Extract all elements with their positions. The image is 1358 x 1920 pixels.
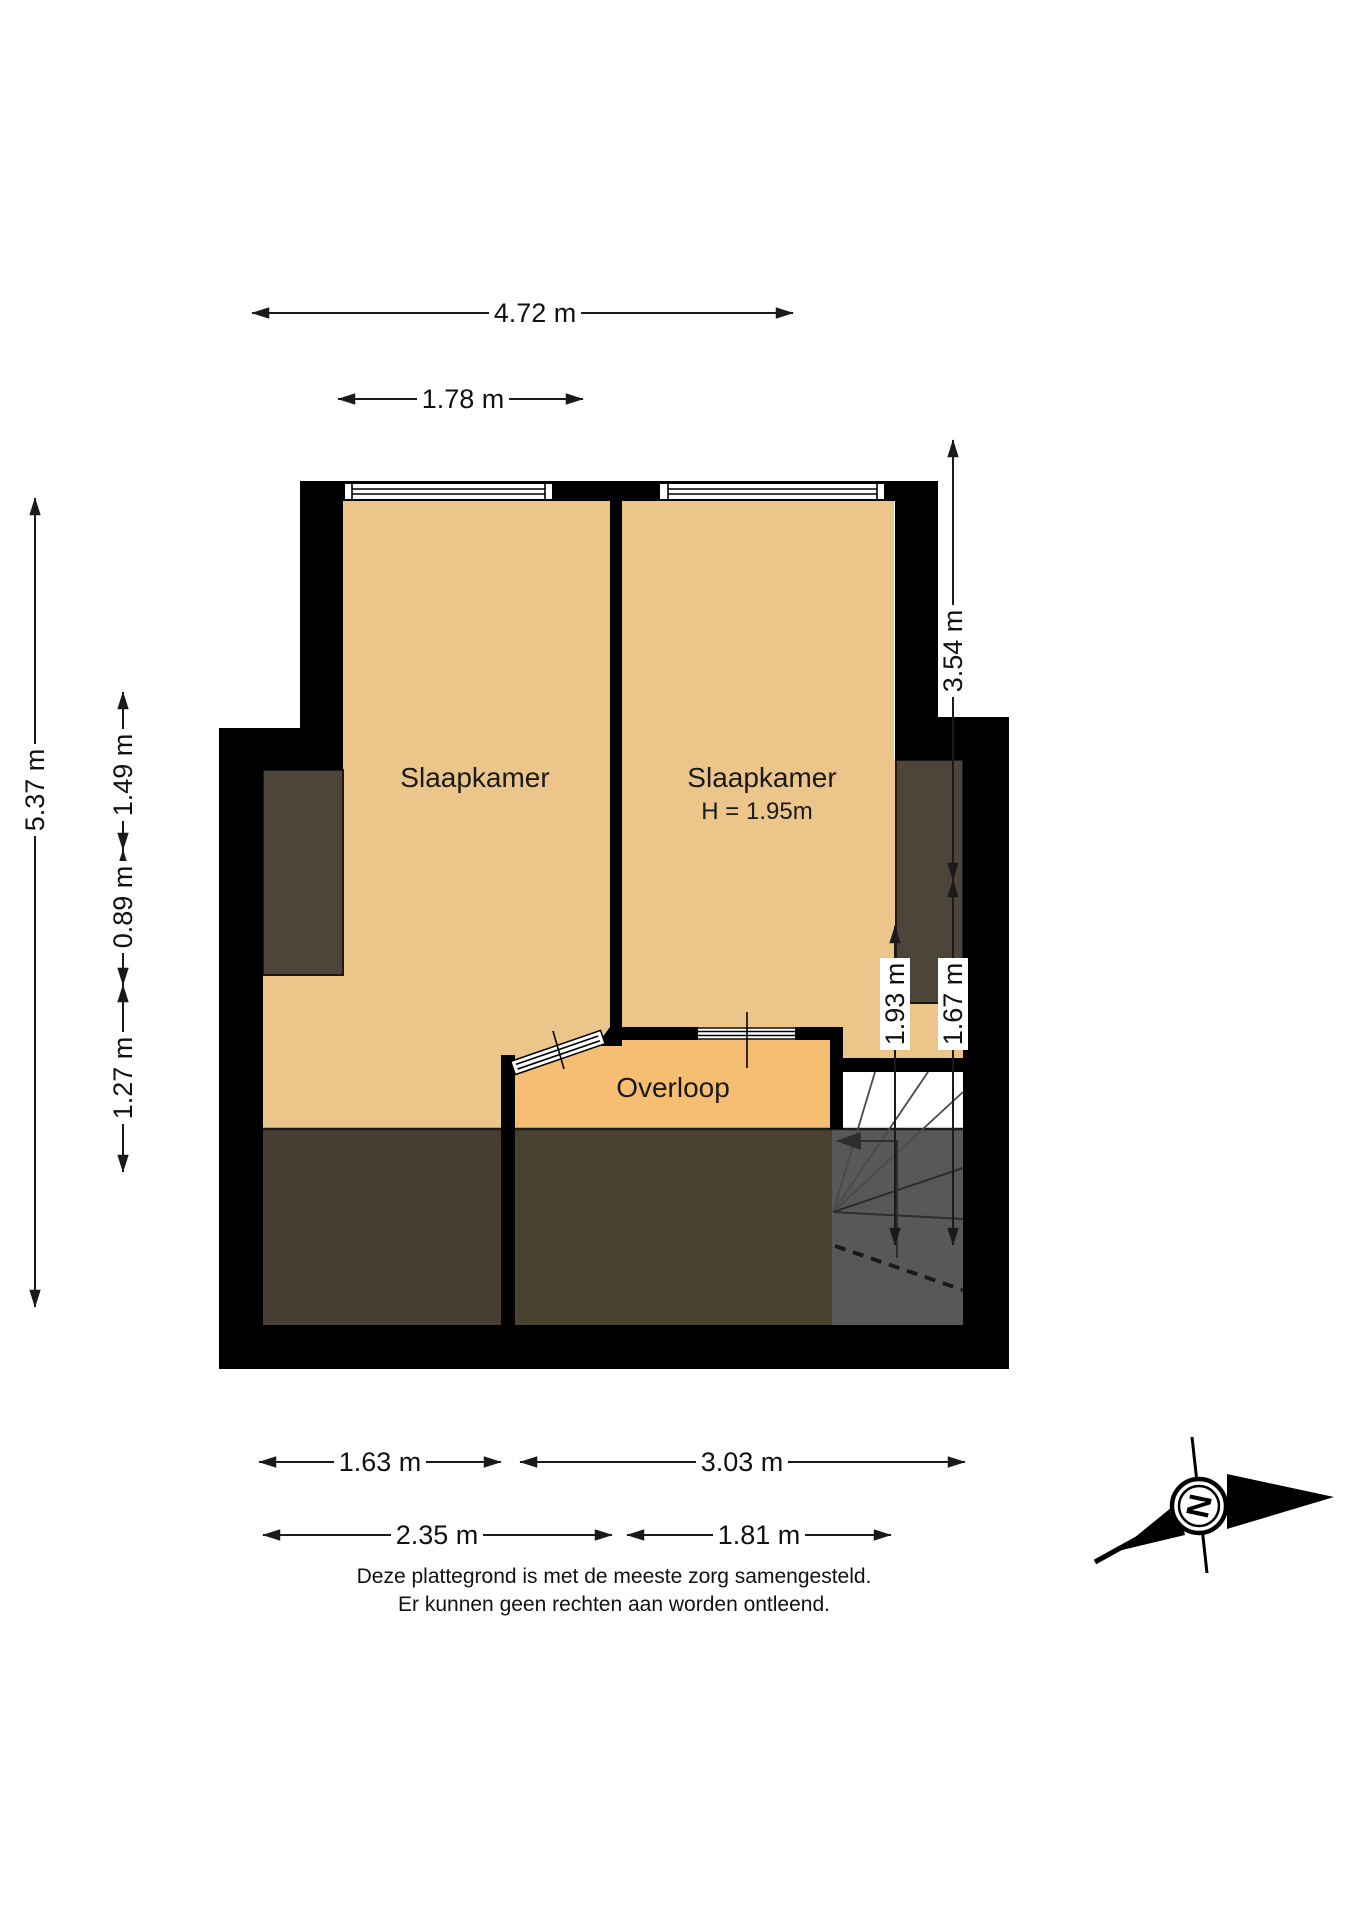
disclaimer-line-1: Deze plattegrond is met de meeste zorg s… bbox=[357, 1565, 872, 1588]
dim-left-overall: 5.37 m bbox=[20, 498, 50, 1307]
dim-label: 3.03 m bbox=[701, 1447, 784, 1477]
landing-label: Overloop bbox=[616, 1072, 730, 1103]
wall-segment bbox=[895, 501, 938, 717]
dim-label: 3.54 m bbox=[938, 610, 968, 693]
dim-left-segment-1: 1.49 m bbox=[108, 692, 138, 850]
window-top-right bbox=[660, 484, 884, 499]
compass-rose: N bbox=[1095, 1437, 1334, 1573]
dim-label: 0.89 m bbox=[108, 866, 138, 949]
dim-label: 1.67 m bbox=[938, 963, 968, 1046]
low-headroom-bottom-mid bbox=[515, 1129, 832, 1325]
wall-segment bbox=[843, 1058, 963, 1072]
dim-label: 2.35 m bbox=[396, 1520, 479, 1550]
dim-label: 1.78 m bbox=[422, 384, 505, 414]
wall-segment bbox=[610, 501, 622, 1027]
dim-top-overall: 4.72 m bbox=[252, 298, 793, 328]
dim-left-segment-2: 0.89 m bbox=[108, 850, 138, 985]
disclaimer-line-2: Er kunnen geen rechten aan worden ontlee… bbox=[398, 1593, 830, 1616]
floorplan-page: Slaapkamer Slaapkamer H = 1.95m Overloop… bbox=[0, 0, 1358, 1920]
dim-bottom-row2-right: 1.81 m bbox=[627, 1520, 891, 1550]
bedroom-left-label: Slaapkamer bbox=[400, 762, 549, 793]
disclaimer: Deze plattegrond is met de meeste zorg s… bbox=[357, 1565, 872, 1616]
bedroom-right-label: Slaapkamer bbox=[687, 762, 836, 793]
wall-segment bbox=[830, 1027, 843, 1129]
dim-label: 1.27 m bbox=[108, 1037, 138, 1120]
compass-needle-north bbox=[1227, 1474, 1334, 1529]
low-headroom-bottom-left bbox=[263, 1129, 501, 1325]
dim-label: 1.81 m bbox=[718, 1520, 801, 1550]
dim-bottom-row1-right: 3.03 m bbox=[520, 1447, 965, 1477]
bedroom-right-height-note: H = 1.95m bbox=[701, 798, 812, 825]
dim-left-segment-3: 1.27 m bbox=[108, 985, 138, 1172]
wall-segment bbox=[219, 728, 343, 770]
dim-label: 5.37 m bbox=[20, 749, 50, 832]
dim-bottom-row2-left: 2.35 m bbox=[263, 1520, 612, 1550]
window-top-left bbox=[345, 484, 552, 499]
floorplan-canvas: Slaapkamer Slaapkamer H = 1.95m Overloop… bbox=[0, 0, 1358, 1920]
wall-segment bbox=[501, 1055, 515, 1325]
wall-segment bbox=[300, 501, 343, 728]
dim-label: 1.93 m bbox=[880, 963, 910, 1046]
wall-segment bbox=[219, 770, 263, 1369]
dim-label: 1.49 m bbox=[108, 734, 138, 817]
dim-top-left-room: 1.78 m bbox=[338, 384, 583, 414]
wall-segment bbox=[610, 1027, 698, 1040]
dim-label: 1.63 m bbox=[339, 1447, 422, 1477]
dim-label: 4.72 m bbox=[494, 298, 577, 328]
wall-segment bbox=[963, 760, 1009, 1369]
low-headroom-area-left bbox=[263, 770, 343, 975]
wall-segment bbox=[219, 1325, 1009, 1369]
dim-bottom-row1-left: 1.63 m bbox=[259, 1447, 501, 1477]
